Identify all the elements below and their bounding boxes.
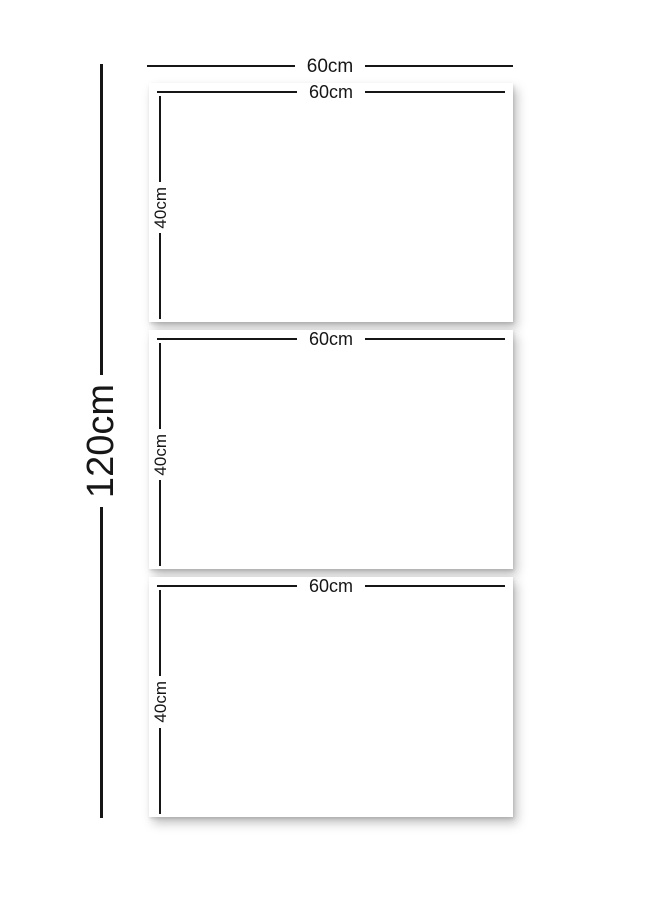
panel-width-label: 60cm [309, 577, 353, 595]
panel-height-dimension: 40cm [151, 590, 169, 814]
overall-height-label: 120cm [82, 384, 120, 498]
panel-height-label: 40cm [152, 187, 169, 229]
dimension-line-segment [159, 590, 161, 676]
overall-width-dimension: 60cm [147, 54, 513, 78]
dimension-line-segment [159, 343, 161, 429]
dimension-line-segment [159, 233, 161, 319]
dimension-line-segment [147, 65, 295, 67]
panel-height-dimension: 40cm [151, 96, 169, 319]
canvas-panel-1: 60cm 40cm [149, 83, 513, 322]
dimension-line-segment [157, 338, 297, 340]
dimension-line-segment [159, 96, 161, 182]
panel-width-dimension: 60cm [157, 330, 505, 348]
dimension-line-segment [100, 507, 103, 818]
overall-height-dimension: 120cm [85, 64, 117, 818]
panel-height-label: 40cm [152, 434, 169, 476]
dimension-line-segment [365, 338, 505, 340]
panel-width-dimension: 60cm [157, 83, 505, 101]
panel-height-dimension: 40cm [151, 343, 169, 566]
canvas-panel-2: 60cm 40cm [149, 330, 513, 569]
panel-width-dimension: 60cm [157, 577, 505, 595]
dimension-line-segment [157, 585, 297, 587]
dimension-line-segment [365, 585, 505, 587]
panel-width-label: 60cm [309, 83, 353, 101]
dimension-line-segment [365, 65, 513, 67]
dimension-line-segment [159, 480, 161, 566]
dimension-line-segment [365, 91, 505, 93]
dimension-line-segment [100, 64, 103, 375]
dimension-line-segment [157, 91, 297, 93]
canvas-panel-3: 60cm 40cm [149, 577, 513, 817]
panel-width-label: 60cm [309, 330, 353, 348]
dimension-line-segment [159, 728, 161, 814]
dimension-diagram: 60cm 120cm 60cm 40cm 60cm 40cm [0, 0, 660, 900]
panel-height-label: 40cm [152, 681, 169, 723]
overall-width-label: 60cm [307, 57, 353, 76]
